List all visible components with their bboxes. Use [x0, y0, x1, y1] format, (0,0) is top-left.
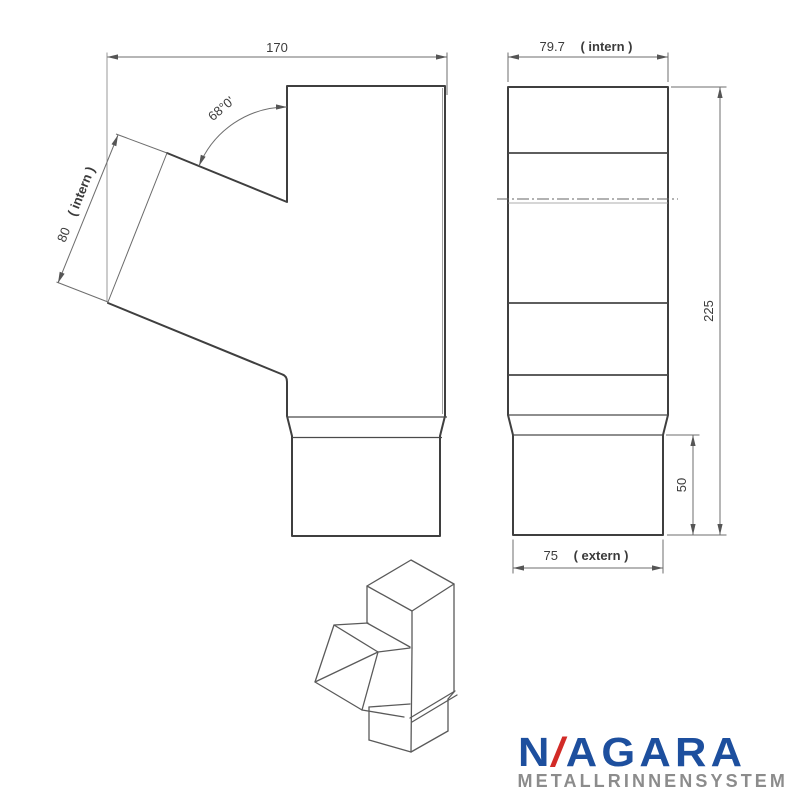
iso-edge — [411, 648, 412, 752]
front-view-outline — [108, 86, 445, 536]
arrowhead — [107, 54, 118, 59]
arrowhead — [690, 435, 695, 446]
arrowhead — [199, 155, 206, 166]
iso-edge — [369, 704, 410, 707]
dim-angle-label: 68°0' — [205, 93, 237, 123]
arrowhead — [717, 524, 722, 535]
dim-spout-height-label: 50 — [674, 478, 689, 492]
iso-edge — [411, 731, 448, 752]
arrowhead — [657, 54, 668, 59]
dim-inlet-value: 80 — [54, 225, 73, 244]
isometric-view — [315, 560, 457, 752]
technical-drawing: 170 68°0' 80 ( intern ) — [0, 0, 800, 800]
arrowhead — [652, 565, 663, 570]
iso-edge — [369, 740, 411, 752]
side-view-outline — [508, 87, 668, 535]
iso-edge — [367, 623, 410, 647]
brand-logo: N/AGARA METALLRINNENSYSTEM — [518, 736, 788, 792]
arrowhead — [436, 54, 447, 59]
dim-inlet-note: ( intern ) — [64, 164, 97, 218]
dim-spout-width-value: 75 — [544, 548, 558, 563]
dim-total-width-label: 170 — [266, 40, 288, 55]
front-view — [108, 86, 447, 536]
iso-edge — [334, 623, 368, 625]
dim-top-width-value: 79.7 — [540, 39, 565, 54]
logo-text-suffix: AGARA — [565, 729, 746, 775]
extension-line — [116, 134, 167, 153]
logo-text-prefix: N — [518, 729, 554, 775]
dim-top-width-note: ( intern ) — [580, 39, 632, 54]
front-view-dimensions — [57, 53, 448, 303]
side-view-dimensions — [508, 53, 727, 574]
arrowhead — [112, 135, 119, 146]
iso-bead-edge — [412, 695, 457, 722]
arrowhead — [513, 565, 524, 570]
dim-spout-width-note: ( extern ) — [574, 548, 629, 563]
side-view — [497, 87, 678, 535]
arrowhead — [690, 524, 695, 535]
iso-edge — [378, 648, 410, 652]
iso-inlet-far-edge — [315, 652, 378, 682]
arrowhead — [276, 104, 287, 109]
arrowhead — [508, 54, 519, 59]
arrowhead — [717, 87, 722, 98]
dim-spout-width-label: 75 ( extern ) — [544, 548, 629, 563]
arrowhead — [58, 272, 65, 283]
dim-total-height-label: 225 — [701, 300, 716, 322]
iso-edge — [362, 710, 404, 717]
extension-line — [57, 282, 109, 302]
inlet-opening-edge — [108, 153, 167, 302]
iso-top-opening — [367, 560, 454, 611]
dim-inlet-width-label: 80 ( intern ) — [54, 164, 98, 244]
brand-logo-wordmark: N/AGARA — [518, 736, 800, 770]
dim-top-width-label: 79.7 ( intern ) — [540, 39, 633, 54]
